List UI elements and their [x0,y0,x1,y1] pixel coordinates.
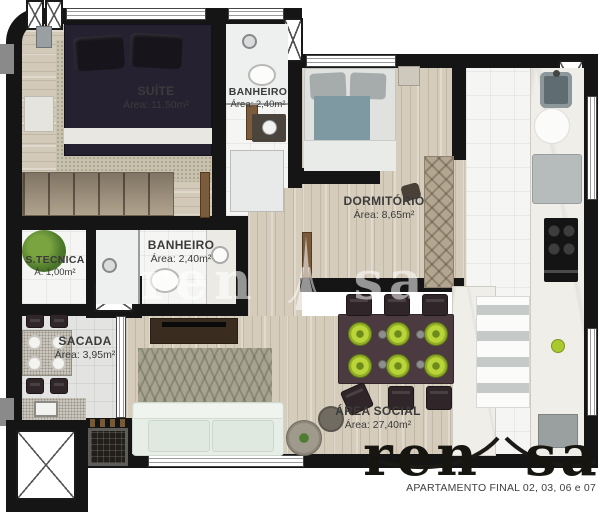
room-label-bathroom-2: BANHEIRO Área: 2,40m² [136,238,226,265]
kitchen-sideboard [476,296,530,408]
room-label-balcony: SACADA Área: 3,95m² [52,334,118,361]
dining-plate [348,354,372,378]
sliding-door-living [148,455,304,467]
shower-head-icon [242,34,257,49]
toilet-icon [150,268,180,293]
room-area: Área: 3,95m² [52,349,118,361]
balcony-plate [27,335,42,350]
suite-bed-sheet [64,128,212,144]
room-area: Área: 11,50m² [96,99,216,111]
tv-icon [162,322,226,327]
wall-bath2-right [236,216,248,316]
kitchen-basin [534,108,570,144]
ac-control-icon [36,26,52,48]
stove-icon [544,218,578,282]
dining-chair [346,294,372,316]
room-area: Área: 2,40m² [220,99,296,110]
brand-text-left: ren [363,428,481,484]
suite-nightstand [24,96,54,132]
brand-text-right: sa [525,428,600,484]
dining-plate [424,322,448,346]
balcony-chair [26,378,44,394]
bedroom-nightstand [398,66,420,86]
brand-logo: ren sa [366,412,598,484]
room-label-suite: SUÍTE Área: 11,50m² [96,84,216,111]
balcony-chair [26,314,44,328]
window-bedroom [306,55,396,67]
sofa-cushion [212,420,274,452]
room-label-tech-room: S.TECNICA Á: 1,00m² [22,254,88,278]
window-suite [66,8,206,20]
balcony-chair [50,314,68,328]
dining-chair [422,294,448,316]
sink-icon [262,120,277,135]
dining-plate [424,354,448,378]
wall-suite-bath [212,8,226,230]
room-name: SUÍTE [96,84,216,98]
side-table-plant [286,420,322,456]
sofa-back [134,404,282,419]
fruit-bowl-icon [551,339,565,353]
suite-pillow [73,34,125,71]
dining-plate [386,354,410,378]
kitchen-sink-icon [540,72,572,108]
kitchen-faucet-icon [553,70,560,77]
suite-wardrobe [22,172,174,216]
room-name: BANHEIRO [220,86,296,98]
suite-pillow [129,33,183,70]
sliding-door-balcony [116,316,126,418]
balcony-plate [27,356,42,371]
door-leaf-bedroom [302,232,312,278]
window-right-lower [587,328,597,416]
shower-box-bath1 [230,150,284,212]
elevator-shaft-x-icon [16,430,76,500]
barbecue-grill-icon [88,428,128,466]
window-bathroom-1 [228,8,284,20]
room-name: BANHEIRO [136,238,226,252]
room-name: S.TECNICA [22,254,88,266]
balcony-sink-icon [34,401,58,417]
table-cup [416,330,425,339]
room-area: Área: 2,40m² [136,253,226,265]
balcony-chair [50,378,68,394]
sofa-cushion [148,420,210,452]
bedroom-blanket [314,96,370,140]
toilet-icon [248,64,276,86]
floor-plan: SUÍTE Área: 11,50m² BANHEIRO Área: 2,40m… [0,0,600,512]
room-label-bedroom: DORMITÓRIO Área: 8,65m² [318,194,450,221]
table-cup [378,360,387,369]
room-area: Á: 1,00m² [22,267,88,278]
room-label-bathroom-1: BANHEIRO Área: 2,40m² [220,86,296,110]
bedroom-duvet [304,140,396,171]
door-leaf-suite [200,172,210,218]
bedroom-wardrobe [424,156,454,288]
grill-bottles [90,419,126,427]
room-area: Área: 8,65m² [318,209,450,221]
shower-head-icon [102,258,117,273]
table-cup [416,360,425,369]
window-kitchen-right [587,96,597,200]
wall-bedroom-kitchen [452,68,466,160]
dining-chair [384,294,410,316]
dining-plate [386,322,410,346]
wall-under-suite [6,216,248,230]
neighbor-wall-mark-top [0,44,14,74]
refrigerator [532,154,582,204]
room-name: SACADA [52,334,118,348]
room-name: DORMITÓRIO [318,194,450,208]
table-cup [378,330,387,339]
footer-note: APARTAMENTO FINAL 02, 03, 06 e 07 [296,482,596,494]
dining-plate [348,322,372,346]
